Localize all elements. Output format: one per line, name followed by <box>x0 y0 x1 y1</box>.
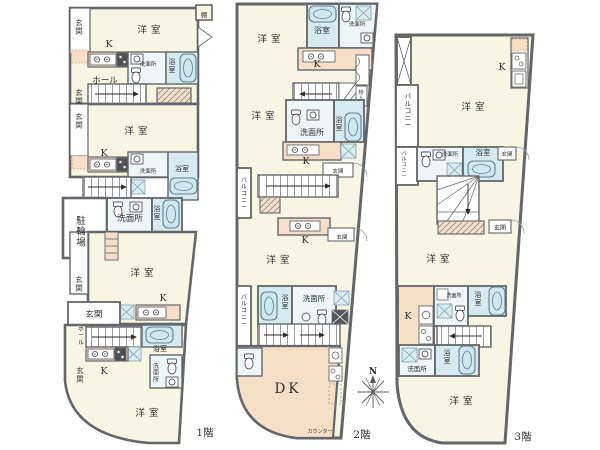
stairs <box>437 326 491 347</box>
western-room-label: 洋室 <box>461 101 488 113</box>
washroom-label: 洗面所 <box>117 213 143 224</box>
bathroom-label: 浴室 <box>336 115 343 132</box>
entrance-label: 玄関 <box>75 17 83 35</box>
balcony-label: バルコニー <box>241 294 247 328</box>
balcony-label: バルコニー <box>405 92 412 129</box>
entrance-label: 玄関 <box>332 167 344 175</box>
balcony-area <box>396 147 418 185</box>
entrance-label: 玄関 <box>75 111 83 129</box>
hall-label: ホール <box>78 326 84 346</box>
hall-label: ホール <box>92 76 118 86</box>
kitchen-label: K <box>105 39 113 50</box>
kitchen-label: K <box>498 62 506 73</box>
kitchen-label: K <box>404 311 412 322</box>
washroom-label: 洗面所 <box>153 362 159 383</box>
louver-area <box>438 221 484 234</box>
western-room-label: 洋室 <box>137 24 164 36</box>
bathroom-label: 浴室 <box>153 344 167 353</box>
bathroom-label: 浴室 <box>476 147 491 157</box>
entrance-label: 玄関 <box>501 150 513 158</box>
western-room-label: 洋室 <box>257 33 284 45</box>
washroom-label: 洗面所 <box>140 60 157 68</box>
kitchen-sink <box>419 306 433 324</box>
bathroom-label: 浴室 <box>444 348 451 365</box>
bathroom-label: 浴室 <box>314 25 330 35</box>
kitchen-counter <box>90 159 116 170</box>
bathroom-label: 浴室 <box>154 204 161 221</box>
washroom-label: 洗面所 <box>300 127 324 137</box>
entrance-label: 玄関 <box>76 365 84 383</box>
washroom-label: 洗面所 <box>407 364 427 373</box>
louver-area <box>260 197 280 213</box>
washroom-label: 洗面所 <box>446 292 461 299</box>
kitchen-sink <box>512 71 526 87</box>
entrance-label: 玄関 <box>336 233 348 241</box>
western-room-label: 洋室 <box>449 395 476 407</box>
floor-number-label: 3階 <box>514 431 532 443</box>
kitchen-label: K <box>302 156 310 167</box>
compass-north-label: N <box>369 367 377 377</box>
floor-number-label: 2階 <box>353 429 371 441</box>
shelf-label: 棚 <box>201 10 208 19</box>
closet <box>356 55 369 85</box>
floor-plan-page: 棚玄関洋室K洗面所浴室ホール玄関玄関洋室K洗面所浴室駐輪場洗面所浴室洋室玄関K玄… <box>0 0 600 450</box>
kitchen-stove <box>329 366 342 381</box>
floor-number-label: 1階 <box>196 427 214 439</box>
kitchen-label: K <box>301 235 309 246</box>
bathroom-label: 浴室 <box>175 164 189 173</box>
shower-icon <box>302 313 310 321</box>
floor-3-plan <box>396 35 533 443</box>
washroom-label: 洗面所 <box>349 20 366 28</box>
bathroom-label: 浴室 <box>475 290 482 307</box>
floor-plan-drawing: 棚玄関洋室K洗面所浴室ホール玄関玄関洋室K洗面所浴室駐輪場洗面所浴室洋室玄関K玄… <box>0 0 600 450</box>
western-room-label: 洋室 <box>124 125 151 137</box>
entrance-label: 玄関 <box>75 87 83 105</box>
counter-label: カウンター <box>307 428 332 435</box>
kitchen-counter <box>138 307 166 318</box>
washroom-label: 洗面所 <box>303 293 326 303</box>
washroom-area <box>292 286 336 326</box>
washroom-label: 洗面所 <box>442 150 459 158</box>
western-room-label: 洋室 <box>135 407 162 419</box>
western-room-label: 洋室 <box>130 267 157 279</box>
entrance-label: 玄関 <box>75 274 83 292</box>
entrance-label: 玄関 <box>494 224 506 232</box>
washroom-label: 洗面所 <box>140 167 157 175</box>
louver-area <box>157 88 191 103</box>
compass-rose <box>357 375 389 408</box>
stairs <box>83 177 131 198</box>
kitchen-stove <box>419 326 433 344</box>
western-room-label: 洋室 <box>251 110 278 122</box>
balcony-label: バルコニー <box>401 151 406 179</box>
storage-label: 物入 <box>358 89 363 102</box>
balcony-label: バルコニー <box>241 177 247 211</box>
entrance-tile <box>72 156 88 169</box>
western-room-label: 洋室 <box>266 254 293 266</box>
bathroom-label: 浴室 <box>169 57 176 74</box>
kitchen-label: K <box>313 59 321 70</box>
kitchen-label: K <box>100 366 108 377</box>
kitchen-tile <box>512 39 527 51</box>
door-leaf <box>198 27 212 47</box>
dining-kitchen-label: DK <box>275 381 302 397</box>
kitchen-counter <box>88 349 114 359</box>
entrance-label: 玄関 <box>85 309 102 320</box>
entrance-tile <box>72 50 89 63</box>
kitchen-sink <box>329 348 342 363</box>
bathroom-label: 浴室 <box>282 293 289 310</box>
kitchen-label: K <box>100 148 108 159</box>
kitchen-counter <box>90 54 116 65</box>
kitchen-stove <box>512 53 526 69</box>
western-room-label: 洋室 <box>426 253 453 265</box>
floor-2-plan <box>237 4 377 438</box>
kitchen-label: K <box>159 293 167 304</box>
bicycle-parking-label: 駐輪場 <box>76 215 86 248</box>
